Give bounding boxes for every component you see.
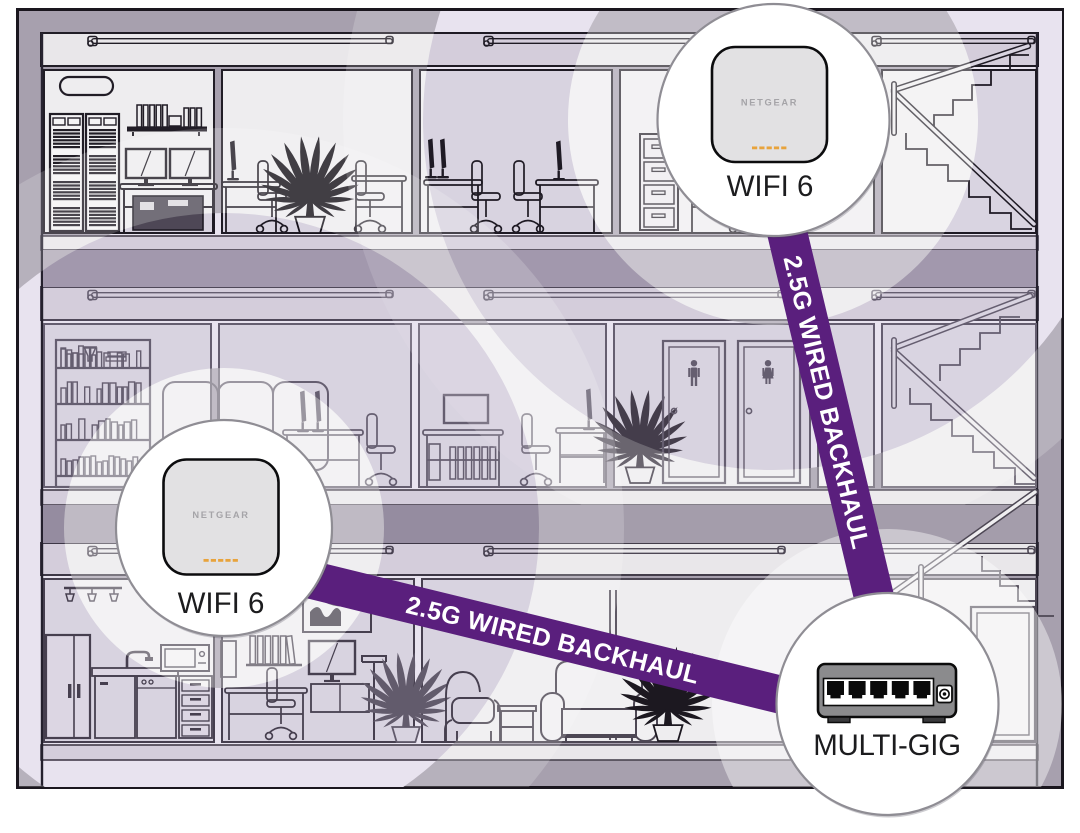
svg-text:WIFI 6: WIFI 6 (727, 170, 814, 203)
svg-text:NETGEAR: NETGEAR (192, 510, 249, 520)
svg-text:NETGEAR: NETGEAR (741, 98, 798, 108)
svg-text:MULTI-GIG: MULTI-GIG (813, 729, 961, 762)
svg-text:WIFI 6: WIFI 6 (178, 587, 265, 620)
